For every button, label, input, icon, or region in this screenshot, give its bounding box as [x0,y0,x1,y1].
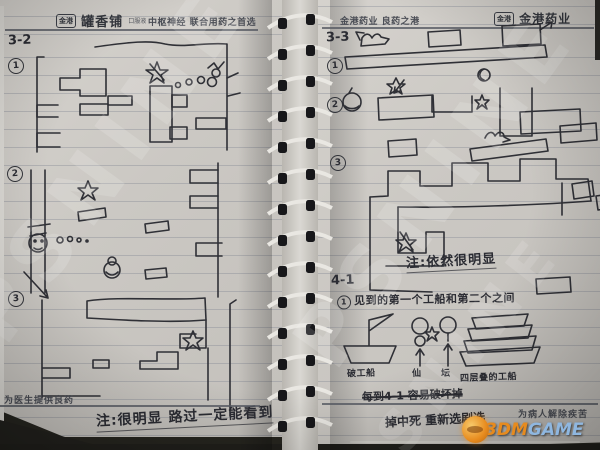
step-text: 见到的第一个工船和第二个之间 [354,291,515,307]
left-header-brand: 金港 罐香铺 口服液 [56,10,146,30]
notebook-photo: 金港 罐香铺 口服液 中枢神经 联合用药之首选 金港药业 良药之港 金港 金港药… [0,0,600,450]
game-logo-text: GAME [528,420,584,440]
brand-logo-icon: 金港 [56,14,76,28]
label-figure-right: 坛 [441,366,451,379]
label-broken-boat: 破工船 [347,366,376,380]
left-header-rule [5,29,258,31]
3dm-logo-text: 3DM [485,420,528,440]
brand-logo-icon: 金港 [494,12,514,26]
right-header-rule [322,27,594,29]
section-label-3-3: 3-3 [326,30,350,46]
brand-name: 罐香铺 [81,15,123,30]
spine-shadow [238,0,272,450]
3dm-sun-icon [462,416,489,443]
desk-edge [595,0,600,60]
section-label-3-2: 3-2 [8,33,32,49]
step-instruction: 1见到的第一个工船和第二个之间 [337,289,515,309]
right-header-slogan: 金港药业 良药之港 [340,14,420,27]
site-logo-3dmgame: 3DM GAME [462,416,584,443]
section-label-4-1: 4-1 [331,273,355,289]
brand-name: 金港药业 [519,12,571,26]
right-footer-rule [322,403,598,405]
desk-edge [0,444,600,450]
right-header-brand: 金港 金港药业 [494,8,571,27]
left-header-slogan: 中枢神经 联合用药之首选 [148,15,256,28]
label-figure-left: 仙 [412,366,422,379]
left-footer-rule [0,405,260,407]
step-number-badge: 1 [337,295,351,309]
label-stacked-boat: 四层叠的工船 [460,369,517,384]
left-page-edge [0,6,4,432]
brand-subtext: 口服液 [128,18,146,25]
